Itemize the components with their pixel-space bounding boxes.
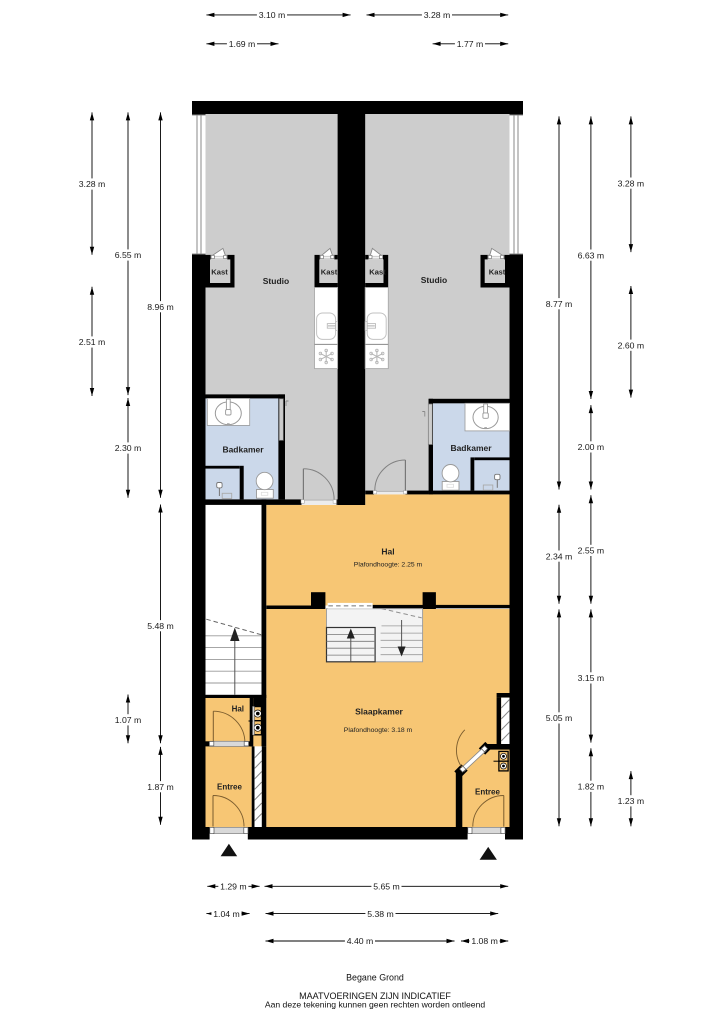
svg-text:6.63 m: 6.63 m — [578, 250, 605, 260]
svg-text:Entree: Entree — [475, 787, 500, 796]
svg-text:Plafondhoogte: 3.18 m: Plafondhoogte: 3.18 m — [344, 727, 413, 734]
svg-text:Aan deze tekening kunnen geen: Aan deze tekening kunnen geen rechten wo… — [265, 1000, 485, 1010]
svg-text:Hal: Hal — [381, 547, 394, 557]
svg-text:4.40 m: 4.40 m — [347, 936, 374, 946]
svg-text:Studio: Studio — [421, 275, 447, 285]
svg-text:1.82 m: 1.82 m — [578, 782, 605, 792]
svg-text:5.38 m: 5.38 m — [367, 909, 394, 919]
svg-text:1.87 m: 1.87 m — [147, 782, 174, 792]
svg-text:6.55 m: 6.55 m — [115, 250, 142, 260]
svg-text:2.34 m: 2.34 m — [546, 551, 573, 561]
svg-text:Kast: Kast — [369, 268, 386, 277]
svg-text:1.77 m: 1.77 m — [457, 39, 484, 49]
svg-text:8.96 m: 8.96 m — [147, 302, 174, 312]
svg-text:Plafondhoogte: 2.25 m: Plafondhoogte: 2.25 m — [354, 561, 423, 568]
svg-text:Badkamer: Badkamer — [450, 443, 492, 453]
svg-text:1.08 m: 1.08 m — [471, 936, 498, 946]
svg-text:1.69 m: 1.69 m — [229, 39, 256, 49]
svg-text:1.29 m: 1.29 m — [220, 882, 247, 892]
svg-text:3.28 m: 3.28 m — [424, 10, 451, 20]
svg-text:3.10 m: 3.10 m — [259, 10, 286, 20]
svg-text:Badkamer: Badkamer — [222, 445, 264, 455]
svg-text:Entree: Entree — [217, 783, 242, 792]
svg-text:2.00 m: 2.00 m — [578, 442, 605, 452]
svg-text:Kast: Kast — [211, 268, 228, 277]
svg-text:5.65 m: 5.65 m — [373, 882, 400, 892]
svg-text:2.30 m: 2.30 m — [115, 443, 142, 453]
svg-text:Slaapkamer: Slaapkamer — [355, 707, 403, 717]
svg-text:5.48 m: 5.48 m — [147, 621, 174, 631]
svg-text:2.55 m: 2.55 m — [578, 546, 605, 556]
svg-text:3.28 m: 3.28 m — [79, 179, 106, 189]
svg-text:Hal: Hal — [232, 705, 244, 714]
svg-text:2.60 m: 2.60 m — [618, 340, 645, 350]
svg-text:Kast: Kast — [489, 268, 506, 277]
svg-text:1.23 m: 1.23 m — [618, 796, 645, 806]
svg-text:3.15 m: 3.15 m — [578, 673, 605, 683]
svg-text:5.05 m: 5.05 m — [546, 713, 573, 723]
svg-text:Kast: Kast — [321, 268, 338, 277]
svg-text:Begane Grond: Begane Grond — [346, 972, 404, 982]
svg-text:1.04 m: 1.04 m — [213, 909, 240, 919]
svg-text:8.77 m: 8.77 m — [546, 299, 573, 309]
svg-text:3.28 m: 3.28 m — [618, 178, 645, 188]
svg-text:1.07 m: 1.07 m — [115, 715, 142, 725]
svg-text:2.51 m: 2.51 m — [79, 337, 106, 347]
svg-text:Studio: Studio — [263, 276, 289, 286]
